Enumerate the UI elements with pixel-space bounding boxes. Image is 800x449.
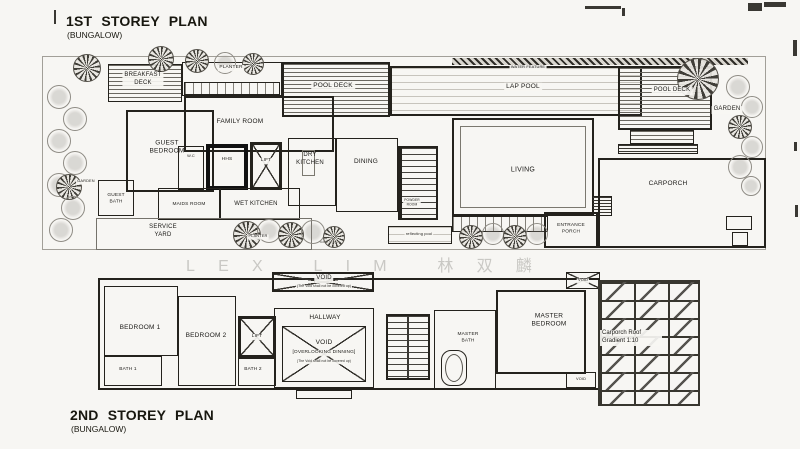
pool-deck-steps bbox=[630, 130, 694, 144]
label-void-main-note: (The Void shall not be covered up) bbox=[296, 360, 352, 364]
label-bedroom-1: BEDROOM 1 bbox=[120, 324, 161, 332]
tree-symbol bbox=[63, 107, 87, 131]
lower-ledge bbox=[296, 390, 352, 399]
label-pool-deck-right: POOL DECK bbox=[652, 87, 693, 95]
tree-symbol bbox=[741, 96, 763, 118]
room-dining bbox=[336, 138, 398, 212]
scan-artifact bbox=[622, 8, 625, 16]
tree-symbol bbox=[741, 176, 761, 196]
scan-artifact bbox=[764, 2, 786, 7]
tree-symbol bbox=[726, 75, 750, 99]
label-living: LIVING bbox=[511, 165, 535, 174]
label-void-top-note: (The Void shall not be covered up) bbox=[296, 285, 352, 289]
label-bedroom-2: BEDROOM 2 bbox=[186, 332, 227, 340]
label-lift-1: LIFT bbox=[259, 158, 273, 164]
tree-symbol bbox=[73, 54, 101, 82]
plan2-title: 2ND STOREY PLAN bbox=[70, 407, 214, 423]
label-garden-right: GARDEN bbox=[712, 106, 743, 114]
gate-post bbox=[726, 216, 752, 230]
tree-symbol bbox=[242, 53, 264, 75]
tree-symbol bbox=[47, 85, 71, 109]
label-planter-bottom: PLANTER bbox=[247, 234, 269, 239]
label-void-tr: VOID bbox=[577, 278, 590, 283]
label-lift-2: LIFT bbox=[250, 334, 264, 340]
label-dining: DINING bbox=[354, 158, 378, 166]
scan-artifact bbox=[794, 142, 797, 151]
label-void-main-sub: [OVERLOOKING DINNING] bbox=[291, 350, 357, 356]
tree-symbol bbox=[278, 222, 304, 248]
label-service-yard: SERVICE YARD bbox=[149, 224, 177, 240]
tree-symbol bbox=[503, 225, 527, 249]
label-garden-left: GARDEN bbox=[76, 179, 96, 184]
label-powder-room: POWDER ROOM bbox=[403, 199, 421, 208]
tree-symbol bbox=[526, 223, 548, 245]
label-hhs: HHS bbox=[220, 157, 234, 163]
scan-artifact bbox=[795, 205, 798, 217]
floor-plan-canvas: 1ST STOREY PLAN (BUNGALOW) bbox=[0, 0, 800, 449]
plan1-title: 1ST STOREY PLAN bbox=[66, 13, 208, 29]
tree-symbol bbox=[741, 136, 763, 158]
bathtub-inner bbox=[445, 354, 463, 382]
label-dry-kitchen: DRY KITCHEN bbox=[296, 152, 324, 168]
label-entrance-porch: ENTRANCE PORCH bbox=[557, 223, 585, 235]
scan-artifact bbox=[54, 10, 56, 24]
label-planter-top: PLANTER bbox=[218, 65, 244, 71]
tree-symbol bbox=[63, 151, 87, 175]
tree-symbol bbox=[61, 196, 85, 220]
carporch-roof-note-bg: Carporch Roof Gradient 1:10 bbox=[600, 330, 662, 346]
stair-divider bbox=[407, 316, 409, 378]
label-guest-bedroom: GUEST BEDROOM bbox=[150, 140, 185, 157]
label-void-br: VOID bbox=[575, 377, 588, 382]
scan-artifact bbox=[793, 40, 797, 56]
label-bath-1: BATH 1 bbox=[119, 367, 136, 373]
tree-symbol bbox=[49, 218, 73, 242]
label-pool-deck-left: POOL DECK bbox=[311, 82, 355, 90]
scan-artifact bbox=[585, 6, 621, 9]
label-wet-kitchen: WET KITCHEN bbox=[234, 201, 277, 209]
label-family-room: FAMILY ROOM bbox=[217, 118, 264, 126]
room-bedroom-1 bbox=[104, 286, 178, 356]
room-lift-1 bbox=[250, 142, 282, 190]
stairs-1 bbox=[398, 146, 438, 220]
room-bedroom-2 bbox=[178, 296, 236, 386]
label-hallway: HALLWAY bbox=[307, 314, 342, 322]
label-void-main: VOID bbox=[314, 339, 335, 347]
label-water-feature: WATER FEATURE bbox=[510, 65, 547, 70]
tree-symbol bbox=[47, 129, 71, 153]
tree-symbol bbox=[148, 46, 174, 72]
plan2-subtitle: (BUNGALOW) bbox=[71, 424, 126, 434]
tree-symbol bbox=[459, 225, 483, 249]
label-void-top: VOID bbox=[314, 275, 333, 283]
label-bath-2: BATH 2 bbox=[244, 367, 261, 373]
label-master-bedroom: MASTER BEDROOM bbox=[532, 313, 567, 330]
label-carporch: CARPORCH bbox=[649, 180, 688, 188]
label-water-feature-small: water feature bbox=[320, 241, 341, 245]
carporch-trellis-band bbox=[618, 144, 698, 154]
room-master-bedroom bbox=[496, 290, 586, 374]
label-carporch-roof: Carporch Roof Gradient 1:10 bbox=[602, 330, 660, 346]
label-maids-room: MAIDS ROOM bbox=[172, 202, 205, 208]
label-lap-pool: LAP POOL bbox=[504, 83, 542, 91]
room-hhs-shelter bbox=[206, 144, 248, 190]
label-wc: W.C bbox=[187, 154, 195, 159]
watermark-text: LEX LIM 林双麟 bbox=[186, 252, 555, 276]
label-reflecting-pool: reflecting pool bbox=[405, 232, 434, 237]
scan-artifact bbox=[748, 3, 762, 11]
tree-symbol bbox=[185, 49, 209, 73]
gate-box bbox=[732, 232, 748, 246]
plan1-subtitle: (BUNGALOW) bbox=[67, 30, 122, 40]
label-breakfast-deck: BREAKFAST DECK bbox=[122, 72, 163, 88]
label-guest-bath: GUEST BATH bbox=[107, 193, 124, 205]
planter-planks bbox=[184, 82, 280, 95]
label-master-bath: MASTER BATH bbox=[458, 332, 479, 344]
tree-symbol bbox=[482, 223, 504, 245]
